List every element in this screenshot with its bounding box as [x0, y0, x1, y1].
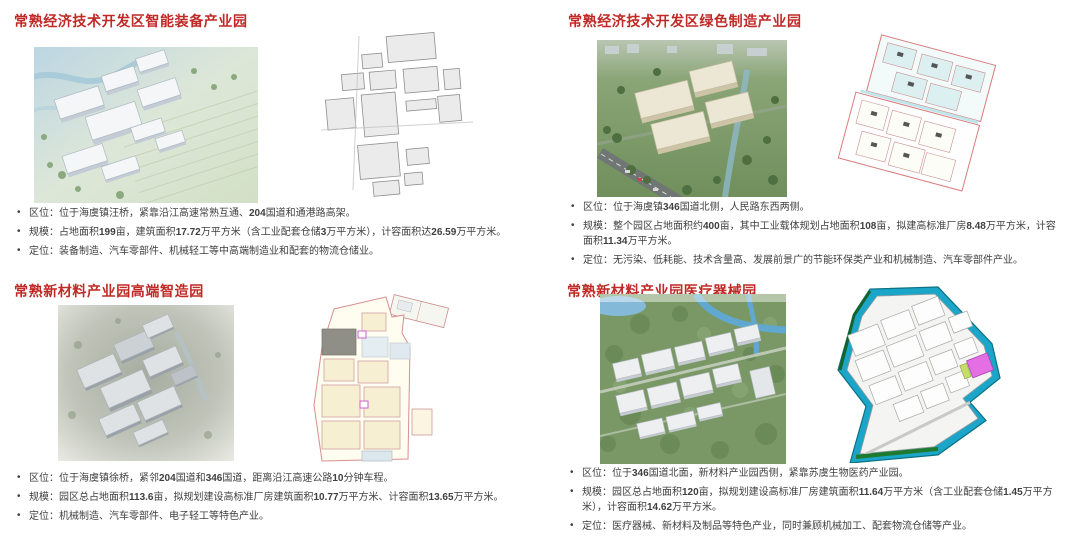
list-item: 定位：装备制造、汽车零部件、机械轻工等中高端制造业和配套的物流仓储业。 — [16, 244, 512, 259]
slide: { "colors": { "title_red": "#c02a26", "b… — [0, 0, 1080, 534]
park-title: 常熟经济技术开发区绿色制造产业园 — [568, 11, 802, 31]
list-item: 规模：园区总占地面积113.6亩，拟规划建设高标准厂房建筑面积10.77万平方米… — [16, 490, 512, 505]
park-panel-high-end-manufacturing: 常熟新材料产业园高端智造园 — [0, 267, 540, 534]
list-item: 规模：园区总占地面积120亩，拟规划建设高标准厂房建筑面积11.64万平方米（含… — [569, 485, 1055, 515]
list-item: 区位：位于海虞镇汪桥，紧靠沿江高速常熟互通、204国道和通港路高架。 — [16, 206, 512, 221]
bullet-text: 规模：园区总占地面积113.6亩，拟规划建设高标准厂房建筑面积10.77万平方米… — [29, 492, 504, 503]
bullet-text: 区位：位于346国道北面，新材料产业园西侧，紧靠苏虞生物医药产业园。 — [582, 468, 909, 479]
site-plan-image — [300, 285, 450, 465]
bullet-text: 区位：位于海虞镇徐桥，紧邻204国道和346国道，距离沿江高速公路10分钟车程。 — [29, 473, 394, 484]
aerial-rendering-image — [600, 294, 786, 464]
list-item: 定位：机械制造、汽车零部件、电子轻工等特色产业。 — [16, 509, 512, 524]
park-panel-smart-equipment: 常熟经济技术开发区智能装备产业园 — [0, 0, 540, 267]
bullet-text: 定位：无污染、低耗能、技术含量高、发展前景广的节能环保类产业和机械制造、汽车零部… — [583, 255, 1023, 266]
park-info-list: 区位：位于海虞镇汪桥，紧靠沿江高速常熟互通、204国道和通港路高架。 规模：占地… — [16, 206, 512, 263]
site-plan-image — [820, 283, 1004, 463]
bullet-text: 规模：占地面积199亩，建筑面积17.72万平方米（含工业配套仓储3万平方米），… — [29, 227, 506, 238]
park-info-list: 区位：位于海虞镇346国道北侧，人民路东西两侧。 规模：整个园区占地面积约400… — [570, 200, 1056, 272]
bullet-text: 规模：园区总占地面积120亩，拟规划建设高标准厂房建筑面积11.64万平方米（含… — [582, 487, 1053, 513]
park-panel-green-manufacturing: 常熟经济技术开发区绿色制造产业园 — [540, 0, 1080, 267]
list-item: 定位：医疗器械、新材料及制品等特色产业，同时兼顾机械加工、配套物流仓储等产业。 — [569, 519, 1055, 534]
bullet-text: 定位：装备制造、汽车零部件、机械轻工等中高端制造业和配套的物流仓储业。 — [29, 246, 379, 257]
list-item: 区位：位于海虞镇346国道北侧，人民路东西两侧。 — [570, 200, 1056, 215]
bullet-text: 区位：位于海虞镇汪桥，紧靠沿江高速常熟互通、204国道和通港路高架。 — [29, 208, 356, 219]
park-info-list: 区位：位于海虞镇徐桥，紧邻204国道和346国道，距离沿江高速公路10分钟车程。… — [16, 471, 512, 528]
aerial-rendering-image — [597, 40, 787, 197]
bullet-text: 规模：整个园区占地面积约400亩，其中工业载体规划占地面积108亩，拟建高标准厂… — [583, 221, 1056, 247]
bullet-text: 定位：医疗器械、新材料及制品等特色产业，同时兼顾机械加工、配套物流仓储等产业。 — [582, 521, 972, 532]
aerial-rendering-image — [34, 47, 258, 203]
park-title: 常熟经济技术开发区智能装备产业园 — [14, 11, 248, 31]
aerial-rendering-image — [58, 305, 234, 461]
site-plan-image — [315, 30, 480, 200]
list-item: 定位：无污染、低耗能、技术含量高、发展前景广的节能环保类产业和机械制造、汽车零部… — [570, 253, 1056, 268]
list-item: 区位：位于海虞镇徐桥，紧邻204国道和346国道，距离沿江高速公路10分钟车程。 — [16, 471, 512, 486]
list-item: 规模：占地面积199亩，建筑面积17.72万平方米（含工业配套仓储3万平方米），… — [16, 225, 512, 240]
park-title: 常熟新材料产业园高端智造园 — [14, 281, 204, 301]
list-item: 规模：整个园区占地面积约400亩，其中工业载体规划占地面积108亩，拟建高标准厂… — [570, 219, 1056, 249]
bullet-text: 区位：位于海虞镇346国道北侧，人民路东西两侧。 — [583, 202, 810, 213]
bullet-text: 定位：机械制造、汽车零部件、电子轻工等特色产业。 — [29, 511, 269, 522]
site-plan-image — [828, 34, 1000, 196]
list-item: 区位：位于346国道北面，新材料产业园西侧，紧靠苏虞生物医药产业园。 — [569, 466, 1055, 481]
park-info-list: 区位：位于346国道北面，新材料产业园西侧，紧靠苏虞生物医药产业园。 规模：园区… — [569, 466, 1055, 538]
park-panel-medical-devices: 常熟新材料产业园医疗器械园 — [540, 267, 1080, 534]
